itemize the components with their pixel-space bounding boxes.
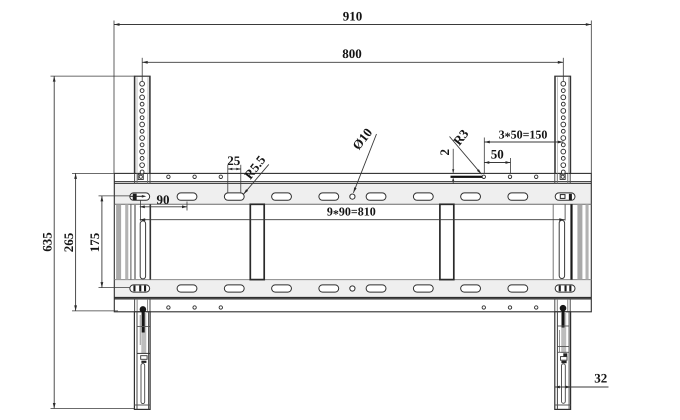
svg-text:910: 910 bbox=[343, 8, 363, 23]
svg-text:265: 265 bbox=[61, 232, 76, 252]
svg-text:25: 25 bbox=[227, 153, 241, 168]
svg-text:32: 32 bbox=[594, 370, 607, 385]
svg-text:90: 90 bbox=[157, 192, 170, 207]
svg-text:3*50=150: 3*50=150 bbox=[499, 127, 548, 143]
svg-text:800: 800 bbox=[342, 46, 362, 61]
svg-text:50: 50 bbox=[491, 147, 504, 162]
svg-text:9*90=810: 9*90=810 bbox=[327, 205, 376, 221]
svg-text:635: 635 bbox=[40, 232, 55, 252]
svg-text:175: 175 bbox=[87, 232, 102, 252]
svg-text:2: 2 bbox=[437, 149, 452, 156]
